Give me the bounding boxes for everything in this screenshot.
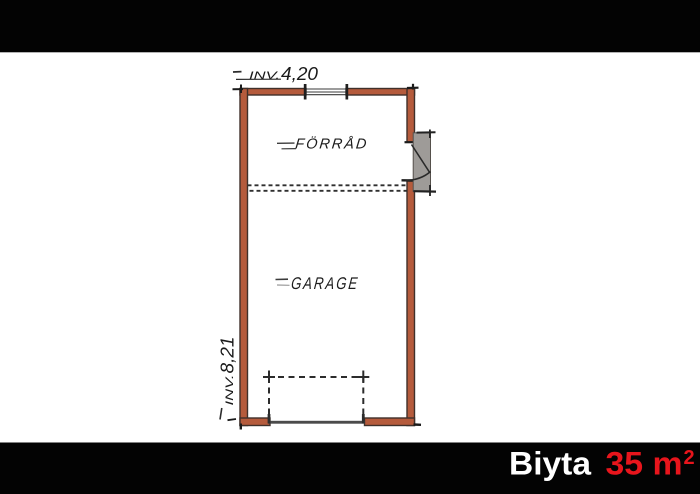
svg-text:INV.: INV. bbox=[249, 70, 280, 82]
svg-text:4,20: 4,20 bbox=[281, 64, 318, 84]
svg-text:GARAGE: GARAGE bbox=[290, 274, 360, 293]
svg-text:35 m: 35 m bbox=[606, 446, 683, 482]
svg-text:2: 2 bbox=[684, 447, 695, 469]
svg-text:FÖRRÅD: FÖRRÅD bbox=[294, 135, 369, 153]
svg-text:8,21: 8,21 bbox=[218, 337, 238, 374]
svg-text:INV.: INV. bbox=[224, 375, 236, 406]
svg-text:Biyta: Biyta bbox=[509, 446, 591, 482]
